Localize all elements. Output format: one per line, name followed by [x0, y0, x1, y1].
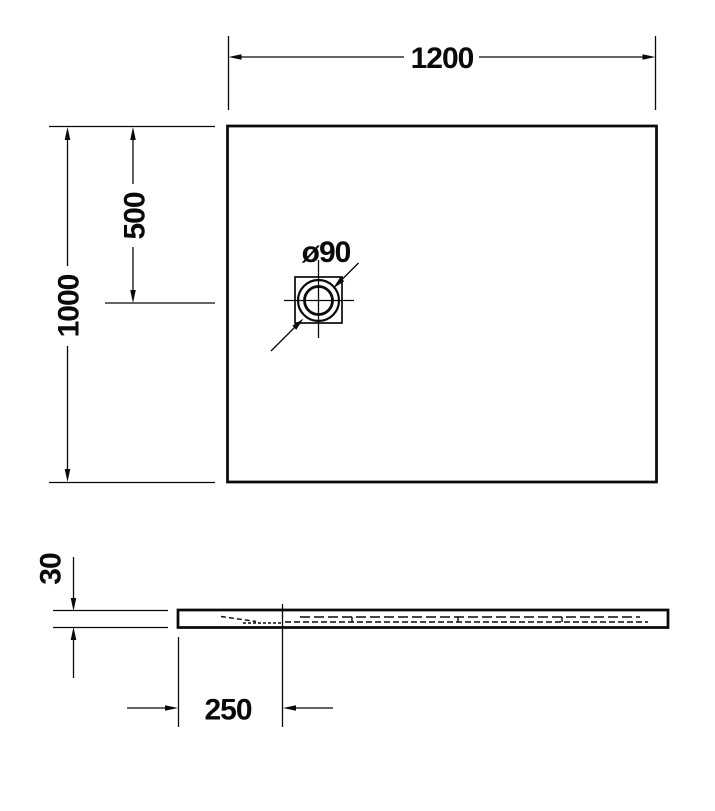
drawing-page: 1200 1000 500	[0, 0, 715, 811]
dimension-drain-offset-left-label: 250	[204, 694, 251, 727]
arrowhead-down	[71, 598, 77, 611]
arrowhead-up	[65, 127, 71, 140]
arrowhead-left	[283, 705, 296, 711]
dimension-height-label: 1000	[53, 274, 86, 337]
top-view: 1200 1000 500	[49, 36, 657, 483]
arrowhead-down	[65, 469, 71, 482]
arrowhead-left	[229, 54, 242, 60]
tray-outline-plan	[228, 126, 657, 482]
technical-drawing: 1200 1000 500	[0, 0, 715, 811]
dimension-width-label: 1200	[411, 42, 474, 75]
dimension-height: 1000	[49, 127, 215, 483]
arrowhead-down	[130, 290, 136, 303]
dimension-drain-offset-top-label: 500	[119, 192, 152, 239]
section-view: 30 250	[35, 553, 669, 727]
arrowhead-up	[130, 127, 136, 140]
tray-profile-section	[178, 610, 668, 628]
arrowhead-right	[165, 705, 178, 711]
arrowhead-right	[643, 54, 656, 60]
dimension-width: 1200	[229, 36, 656, 110]
dimension-thickness: 30	[35, 553, 169, 678]
arrowhead-up	[71, 627, 77, 640]
drain-diameter-label: ø90	[302, 236, 351, 269]
dimension-drain-offset-top: 500	[105, 127, 215, 303]
dimension-thickness-label: 30	[35, 553, 68, 585]
dimension-drain-offset-left: 250	[127, 637, 333, 727]
